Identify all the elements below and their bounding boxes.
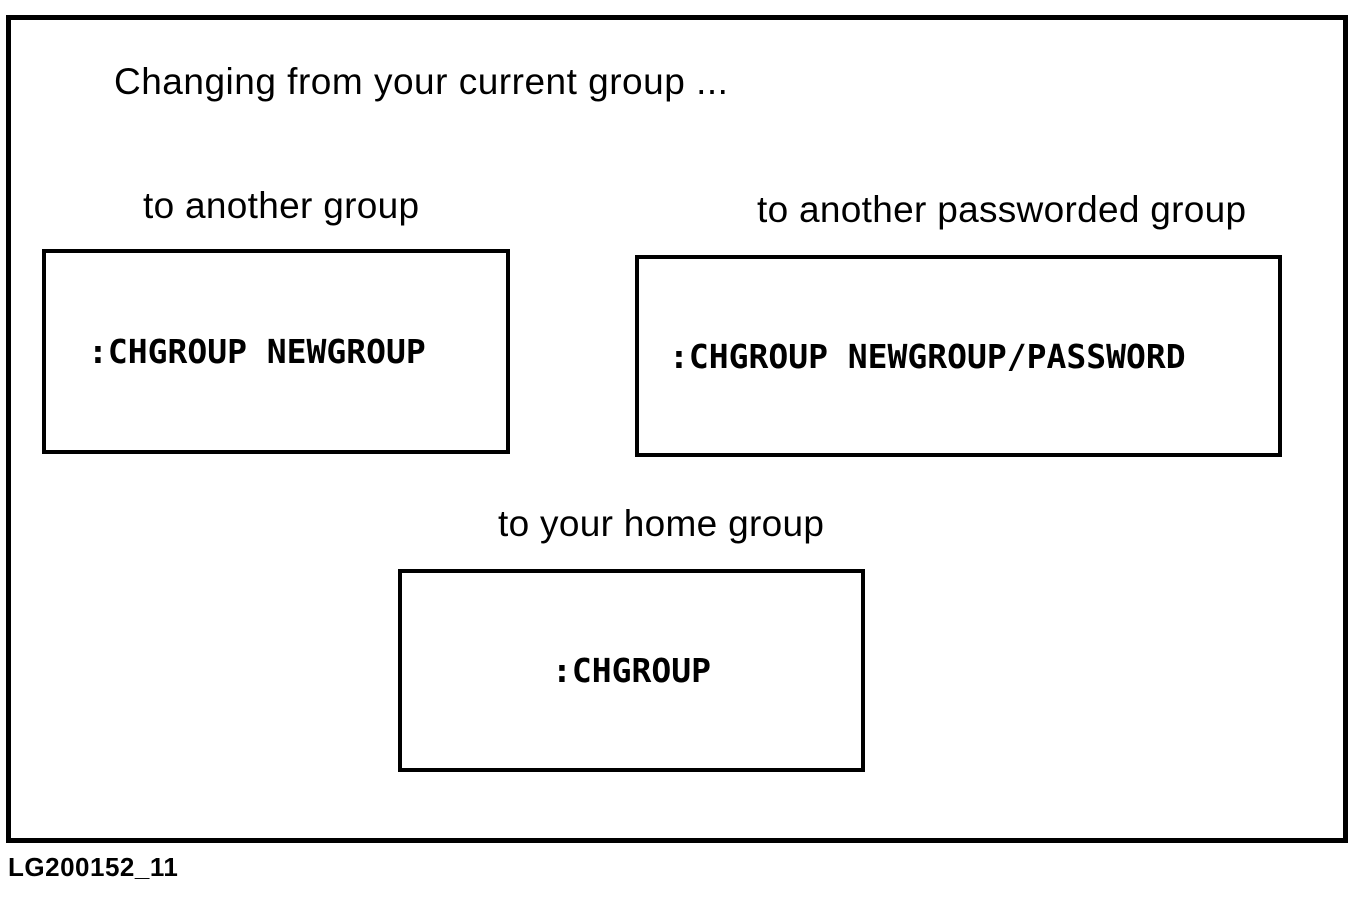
box-label-another-passworded-group: to another passworded group bbox=[757, 190, 1246, 231]
box-label-another-group: to another group bbox=[143, 186, 419, 227]
command-box-another-group: :CHGROUP NEWGROUP bbox=[42, 249, 510, 454]
box-label-home-group: to your home group bbox=[498, 504, 824, 545]
command-box-home-group: :CHGROUP bbox=[398, 569, 865, 772]
command-text-chgroup-newgroup: :CHGROUP NEWGROUP bbox=[88, 332, 426, 371]
figure-title: Changing from your current group ... bbox=[114, 62, 728, 103]
command-text-chgroup-newgroup-password: :CHGROUP NEWGROUP/PASSWORD bbox=[669, 337, 1186, 376]
figure-id-caption: LG200152_11 bbox=[8, 852, 178, 883]
figure-canvas: Changing from your current group ... to … bbox=[0, 0, 1366, 902]
command-text-chgroup: :CHGROUP bbox=[552, 651, 711, 690]
command-box-another-passworded-group: :CHGROUP NEWGROUP/PASSWORD bbox=[635, 255, 1282, 457]
